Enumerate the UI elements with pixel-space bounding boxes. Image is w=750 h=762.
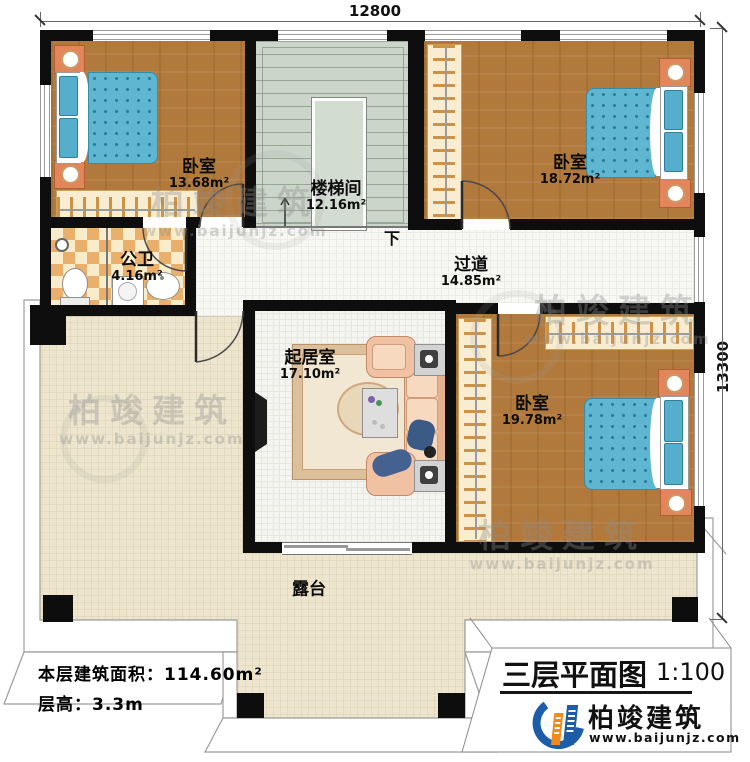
watermark: 柏竣建筑 www.baijunjz.com bbox=[469, 517, 654, 573]
nightstand bbox=[659, 58, 691, 87]
wall-living-right bbox=[445, 300, 456, 553]
watermark-website: www.baijunjz.com bbox=[525, 330, 710, 348]
nightstand bbox=[659, 179, 691, 208]
room-name: 露台 bbox=[292, 581, 326, 600]
dimension-right: 13300 bbox=[714, 340, 732, 394]
pillow bbox=[664, 132, 683, 172]
room-label-bedroom-top-right: 卧室 18.72m² bbox=[540, 154, 600, 188]
wall-bedroom-tr-bottom bbox=[408, 219, 694, 230]
dimension-top: 12800 bbox=[340, 2, 410, 20]
watermark: 柏竣建筑 www.baijunjz.com bbox=[59, 392, 244, 448]
floor-lamp-icon bbox=[424, 446, 436, 458]
watermark: 柏竣建筑 www.baijunjz.com bbox=[142, 184, 327, 240]
corner-column bbox=[30, 305, 66, 345]
room-label-stairwell: 楼梯间 12.16m² bbox=[306, 180, 366, 214]
room-name: 卧室 bbox=[169, 158, 229, 177]
door-opening bbox=[462, 219, 510, 230]
wardrobe bbox=[427, 44, 462, 220]
brand-logo-icon bbox=[528, 697, 584, 751]
cup-decor bbox=[372, 420, 377, 425]
window bbox=[560, 30, 667, 41]
dimension-line-top bbox=[40, 21, 700, 22]
room-area: 17.10m² bbox=[280, 368, 340, 383]
bed-sheet-fold bbox=[650, 88, 660, 176]
plant-decor-center bbox=[425, 355, 433, 363]
room-label-living-room: 起居室 17.10m² bbox=[280, 349, 340, 383]
nightstand bbox=[54, 45, 85, 74]
watermark-website: www.baijunjz.com bbox=[59, 430, 244, 448]
nightstand bbox=[658, 369, 690, 397]
bathroom-partition bbox=[106, 228, 108, 306]
room-area: 12.16m² bbox=[306, 199, 366, 214]
room-area: 13.68m² bbox=[169, 177, 229, 192]
room-area: 4.16m² bbox=[111, 270, 162, 285]
dimension-line-right bbox=[722, 28, 723, 620]
pillow bbox=[664, 443, 683, 485]
room-name: 过道 bbox=[441, 256, 501, 275]
plan-scale: 1:100 bbox=[656, 658, 725, 686]
plan-title: 三层平面图 bbox=[502, 652, 647, 694]
cup-decor bbox=[380, 424, 385, 429]
sliding-door-leaf bbox=[346, 548, 410, 551]
nightstand-lamp-icon bbox=[61, 50, 80, 69]
room-name: 楼梯间 bbox=[306, 180, 366, 199]
floor-height-label: 层高： bbox=[38, 695, 92, 715]
shower-drain-icon bbox=[118, 282, 137, 301]
armchair-cushion bbox=[372, 344, 406, 370]
brand-website: www.baijunjz.com bbox=[589, 730, 741, 745]
wall-stairwell-bedroom bbox=[408, 41, 424, 230]
nightstand-lamp-icon bbox=[667, 494, 686, 513]
nightstand bbox=[54, 160, 85, 189]
window bbox=[694, 373, 705, 506]
window bbox=[40, 85, 51, 177]
room-label-bedroom-top-left: 卧室 13.68m² bbox=[169, 158, 229, 192]
room-name: 公卫 bbox=[111, 251, 162, 270]
room-label-corridor: 过道 14.85m² bbox=[441, 256, 501, 290]
nightstand bbox=[660, 489, 692, 516]
title-underline bbox=[500, 691, 692, 694]
wall-bathroom-right bbox=[185, 228, 196, 316]
wall-living-top bbox=[243, 300, 456, 311]
floor-height-info: 层高：3.3m bbox=[38, 690, 144, 715]
floor-area-value: 114.60m² bbox=[164, 665, 263, 685]
room-name: 起居室 bbox=[280, 349, 340, 368]
pillow bbox=[59, 118, 78, 158]
coffee-table bbox=[362, 388, 398, 438]
floor-height-value: 3.3m bbox=[92, 695, 144, 715]
plant-decor-center bbox=[425, 471, 433, 479]
wardrobe-rod bbox=[445, 47, 447, 217]
pillow bbox=[664, 90, 683, 130]
watermark-brand: 柏竣建筑 bbox=[469, 517, 654, 555]
stair-down-label: 下 bbox=[384, 225, 400, 249]
room-label-bathroom: 公卫 4.16m² bbox=[111, 251, 162, 285]
flower-decor bbox=[368, 396, 375, 403]
window bbox=[425, 30, 521, 41]
bed-sheet-fold bbox=[650, 398, 660, 488]
pillow bbox=[664, 400, 683, 442]
pillow bbox=[59, 76, 78, 116]
flower-decor bbox=[376, 400, 382, 406]
ceiling-lamp-icon bbox=[55, 238, 69, 252]
watermark-brand: 柏竣建筑 bbox=[59, 392, 244, 430]
bed-mattress bbox=[584, 398, 658, 490]
watermark-website: www.baijunjz.com bbox=[142, 222, 327, 240]
room-area: 18.72m² bbox=[540, 173, 600, 188]
nightstand-lamp-icon bbox=[61, 165, 80, 184]
sliding-door-leaf bbox=[284, 545, 348, 548]
watermark-website: www.baijunjz.com bbox=[469, 555, 654, 573]
window bbox=[93, 30, 210, 41]
room-label-terrace: 露台 bbox=[292, 581, 326, 600]
toilet bbox=[62, 268, 88, 300]
room-area: 14.85m² bbox=[441, 275, 501, 290]
corridor-door-nook bbox=[196, 300, 243, 316]
room-area: 19.78m² bbox=[502, 414, 562, 429]
window bbox=[278, 30, 387, 41]
bed-mattress bbox=[88, 72, 158, 164]
room-name: 卧室 bbox=[540, 154, 600, 173]
floor-plan-canvas: 柏竣建筑 www.baijunjz.com 柏竣建筑 www.baijunjz.… bbox=[0, 0, 750, 762]
window bbox=[694, 93, 705, 193]
floor-area-info: 本层建筑面积：114.60m² bbox=[38, 660, 263, 685]
floor-area-label: 本层建筑面积： bbox=[38, 665, 164, 685]
nightstand-lamp-icon bbox=[666, 184, 685, 203]
room-name: 卧室 bbox=[502, 395, 562, 414]
watermark: 柏竣建筑 www.baijunjz.com bbox=[525, 292, 710, 348]
watermark-brand: 柏竣建筑 bbox=[525, 292, 710, 330]
wall-living-left bbox=[243, 300, 255, 553]
nightstand-lamp-icon bbox=[666, 63, 685, 82]
room-label-bedroom-bottom-right: 卧室 19.78m² bbox=[502, 395, 562, 429]
nightstand-lamp-icon bbox=[665, 374, 684, 393]
